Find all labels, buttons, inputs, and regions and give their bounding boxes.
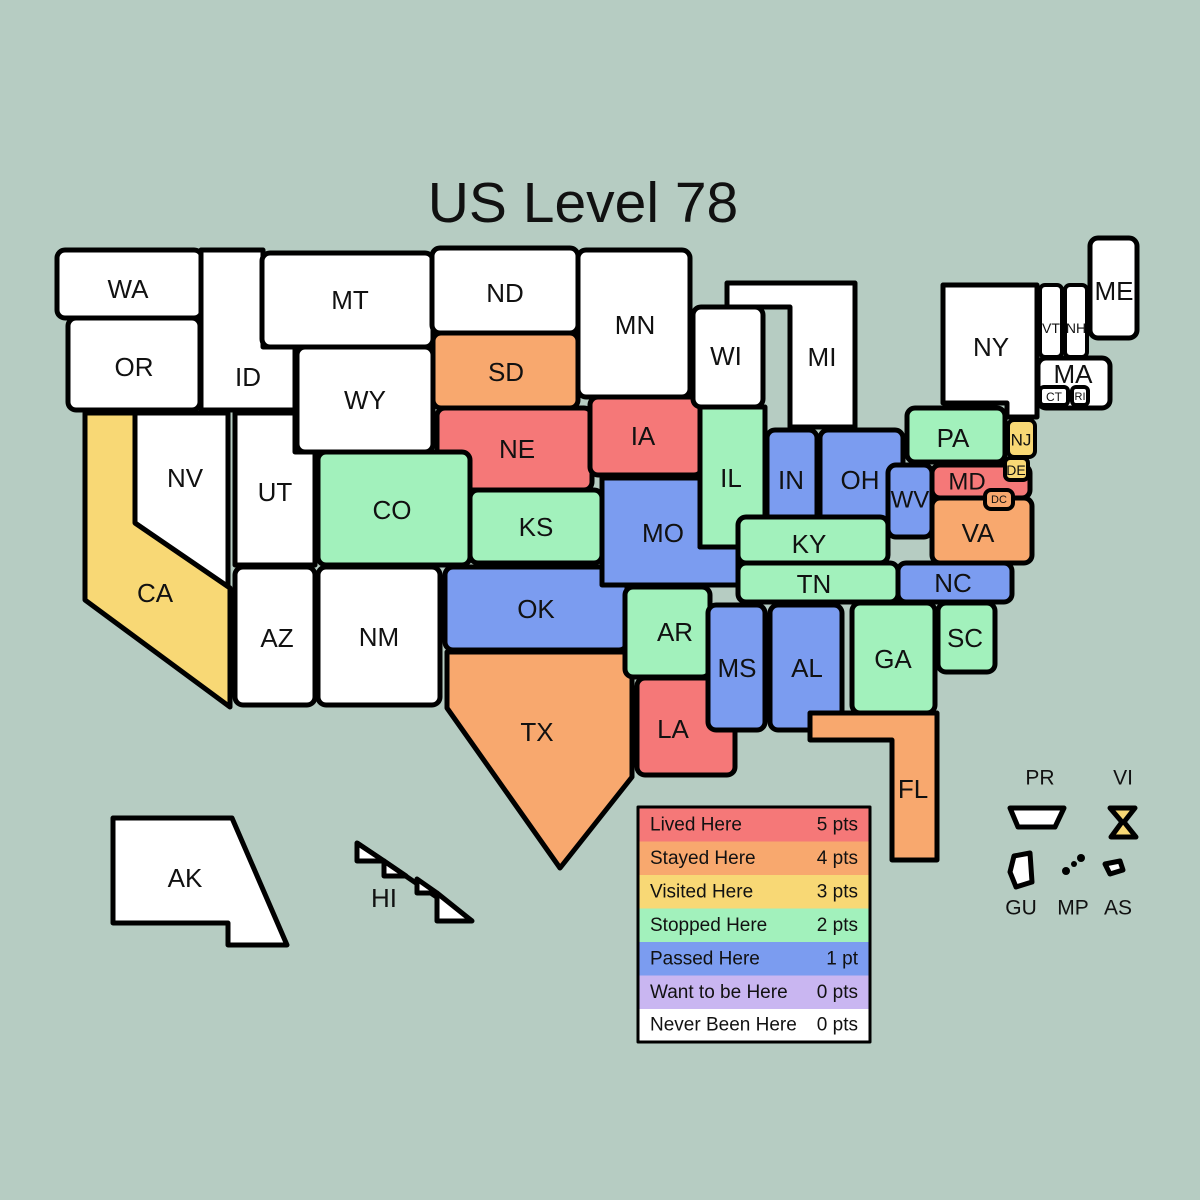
state-ok-label: OK [517,594,555,624]
state-ny-label: NY [973,332,1009,362]
state-nv-label: NV [167,463,204,493]
state-wi-label: WI [710,341,742,371]
territory-gu-label: GU [1005,897,1037,920]
mp-island-dot [1062,867,1070,875]
state-ma-label: MA [1054,359,1094,389]
state-oh-label: OH [841,465,880,495]
legend: Lived Here 5 pts Stayed Here 4 pts Visit… [638,807,870,1042]
state-ia-label: IA [631,421,656,451]
state-mo-label: MO [642,518,684,548]
state-wa-label: WA [108,274,150,304]
state-nd-label: ND [486,278,524,308]
state-tx-label: TX [520,717,553,747]
state-nm-label: NM [359,622,399,652]
state-va-label: VA [962,518,995,548]
state-al-label: AL [791,653,823,683]
state-ca-label: CA [137,578,174,608]
legend-label: Passed Here [650,949,760,970]
state-sc-label: SC [947,623,983,653]
legend-label: Stopped Here [650,915,767,936]
page-title: US Level 78 [428,171,739,235]
legend-points: 0 pts [817,982,858,1003]
territory-vi-label: VI [1113,767,1133,790]
state-mi-label: MI [808,342,837,372]
state-fl-label: FL [898,774,928,804]
mp-island-dot [1071,861,1077,867]
state-ks-label: KS [519,512,554,542]
territory-mp-label: MP [1057,897,1089,920]
territory-pr[interactable] [1010,808,1064,827]
state-or-label: OR [115,352,154,382]
state-de-label: DE [1006,462,1025,478]
state-ky-label: KY [792,529,827,559]
territory-as-label: AS [1104,897,1132,920]
state-tn-label: TN [797,569,832,599]
state-mt-label: MT [331,285,369,315]
state-in-label: IN [778,465,804,495]
territory-pr-label: PR [1025,767,1054,790]
state-ri-label: RI [1075,391,1086,403]
state-id-label: ID [235,362,261,392]
state-ga-label: GA [874,644,912,674]
mp-island-dot [1077,854,1085,862]
state-wy-label: WY [344,385,386,415]
state-dc-label: DC [991,494,1007,506]
state-wv-label: WV [891,487,930,514]
legend-points: 0 pts [817,1015,858,1036]
state-ak-label: AK [168,863,203,893]
state-ut-label: UT [258,477,293,507]
legend-points: 4 pts [817,848,858,869]
state-nj-label: NJ [1011,431,1032,450]
legend-label: Never Been Here [650,1015,797,1036]
state-la-label: LA [657,714,689,744]
legend-points: 5 pts [817,815,858,836]
state-il-label: IL [720,463,742,493]
state-ms-label: MS [718,653,757,683]
state-nh-label: NH [1066,320,1086,336]
state-co-label: CO [373,495,412,525]
legend-points: 2 pts [817,915,858,936]
state-ct-label: CT [1046,390,1063,404]
legend-label: Stayed Here [650,848,756,869]
territory-as[interactable] [1105,861,1123,874]
state-pa-label: PA [937,423,970,453]
state-sd-label: SD [488,357,524,387]
territory-gu[interactable] [1010,853,1032,887]
state-md-label: MD [948,469,985,496]
legend-label: Want to be Here [650,982,788,1003]
legend-points: 3 pts [817,882,858,903]
state-nc-label: NC [934,568,972,598]
legend-points: 1 pt [826,949,858,970]
state-ne-label: NE [499,434,535,464]
state-hi-label: HI [371,883,397,913]
state-me-label: ME [1095,276,1134,306]
state-az-label: AZ [260,623,293,653]
legend-label: Lived Here [650,815,742,836]
us-level-map: US Level 78 [0,0,1200,1200]
state-ar-label: AR [657,617,693,647]
legend-label: Visited Here [650,882,753,903]
state-mn-label: MN [615,310,655,340]
state-vt-label: VT [1042,320,1060,336]
